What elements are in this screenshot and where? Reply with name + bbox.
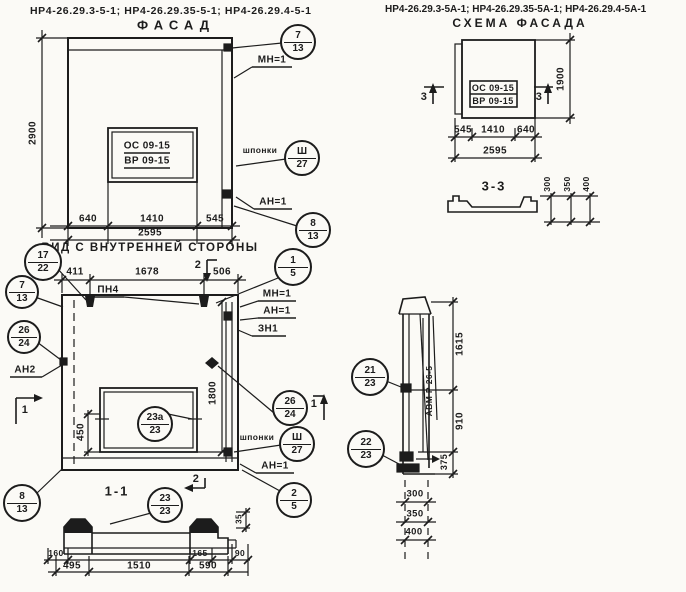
s11-dim-90: 90: [235, 548, 245, 558]
callout-7-13-facade: 713: [280, 24, 316, 60]
facade-stamp-top: ОС 09-15: [124, 141, 171, 152]
section-marker-3-right: 3: [536, 91, 543, 103]
callout-26-24-right: 2624: [272, 390, 308, 426]
inner-dim-1800: 1800: [208, 381, 219, 405]
section-3-3-title: 3-3: [482, 179, 507, 194]
section-marker-1-right: 1: [311, 398, 318, 410]
inner-dim-506: 506: [213, 267, 231, 278]
scheme-dim-640: 640: [517, 125, 535, 136]
section-marker-1-left: 1: [22, 404, 29, 416]
side-dim-300: 300: [406, 489, 423, 500]
inner-label-pn4: ПН4: [97, 285, 118, 296]
scheme-stamp-top: ОС 09-15: [472, 83, 514, 93]
s11-dim-165: 165: [192, 548, 207, 558]
scheme-stamp-bottom: ВР 09-15: [472, 96, 513, 106]
header-right: НР4-26.29.3-5А-1; НР4-26.29.35-5А-1; НР4…: [385, 4, 646, 15]
scheme-dim-1410: 1410: [481, 125, 505, 136]
side-dim-350: 350: [406, 509, 423, 520]
facade-dim-1410: 1410: [140, 214, 164, 225]
callout-22-23: 2223: [347, 430, 385, 468]
inner-dim-450: 450: [76, 423, 87, 441]
callout-sh-27-facade: Ш27: [284, 140, 320, 176]
s33-dim-300: 300: [542, 176, 552, 191]
s11-dim-590: 590: [199, 561, 217, 572]
callout-7-13-inner: 713: [5, 275, 39, 309]
facade-height-dim: 2900: [28, 121, 39, 145]
side-dim-910: 910: [455, 412, 466, 430]
s11-dim-35: 35: [235, 514, 244, 524]
inner-label-an3: АН=1: [261, 461, 288, 472]
section-marker-2-top: 2: [195, 259, 202, 271]
callout-2-5: 25: [276, 482, 312, 518]
linework-layer: [0, 0, 686, 592]
s33-dim-350: 350: [562, 176, 572, 191]
callout-26-24-left: 2624: [7, 320, 41, 354]
callout-21-23: 2123: [351, 358, 389, 396]
section-1-1-title: 1-1: [105, 484, 130, 499]
facade-label-mn: МН=1: [258, 55, 287, 66]
facade-dim-545: 545: [206, 214, 224, 225]
inner-label-an2: АН2: [14, 365, 35, 376]
side-dim-400: 400: [405, 527, 422, 538]
section-marker-3-left: 3: [421, 91, 428, 103]
header-left: НР4-26.29.3-5-1; НР4-26.29.35-5-1; НР4-2…: [30, 5, 312, 17]
facade-label-shponki: шпонки: [243, 145, 277, 155]
s11-dim-160: 160: [48, 548, 63, 558]
facade-dim-640: 640: [79, 214, 97, 225]
inner-dim-411: 411: [66, 267, 83, 278]
drawing-sheet: НР4-26.29.3-5-1; НР4-26.29.35-5-1; НР4-2…: [0, 0, 686, 592]
inner-label-shponki: шпонки: [240, 432, 274, 442]
inner-view-title: ВИД С ВНУТРЕННЕЙ СТОРОНЫ: [41, 242, 258, 254]
s11-dim-495: 495: [63, 561, 81, 572]
callout-1-5: 15: [274, 248, 312, 286]
callout-sh-27-inner: Ш27: [279, 426, 315, 462]
side-section-linework: [382, 297, 458, 560]
section-3-3-linework: [448, 192, 600, 226]
side-dim-375: 375: [439, 454, 449, 470]
scheme-dim-total: 2595: [483, 146, 507, 157]
s33-dim-400: 400: [581, 176, 591, 191]
side-label-avm: АВМ Р 26-5: [424, 366, 434, 417]
scheme-height-dim: 1900: [556, 67, 567, 91]
facade-title: ФАСАД: [137, 18, 215, 33]
scheme-title: СХЕМА ФАСАДА: [452, 16, 587, 30]
facade-label-an: АН=1: [259, 197, 286, 208]
inner-label-an1: АН=1: [263, 306, 290, 317]
s11-dim-1510: 1510: [127, 561, 151, 572]
section-marker-2-bottom: 2: [193, 473, 200, 485]
facade-dim-total: 2595: [138, 228, 162, 239]
callout-8-13-facade: 813: [295, 212, 331, 248]
callout-23-23: 2323: [147, 487, 183, 523]
facade-stamp-bottom: ВР 09-15: [124, 156, 169, 167]
scheme-dim-545: 545: [454, 125, 472, 136]
inner-dim-1678: 1678: [135, 267, 159, 278]
inner-label-zn1: ЗН1: [258, 324, 278, 335]
callout-8-13-inner: 813: [3, 484, 41, 522]
inner-label-mn: МН=1: [263, 289, 292, 300]
callout-23a-23: 23а23: [137, 406, 173, 442]
callout-17-22: 1722: [24, 243, 62, 281]
side-dim-1615: 1615: [455, 332, 466, 356]
